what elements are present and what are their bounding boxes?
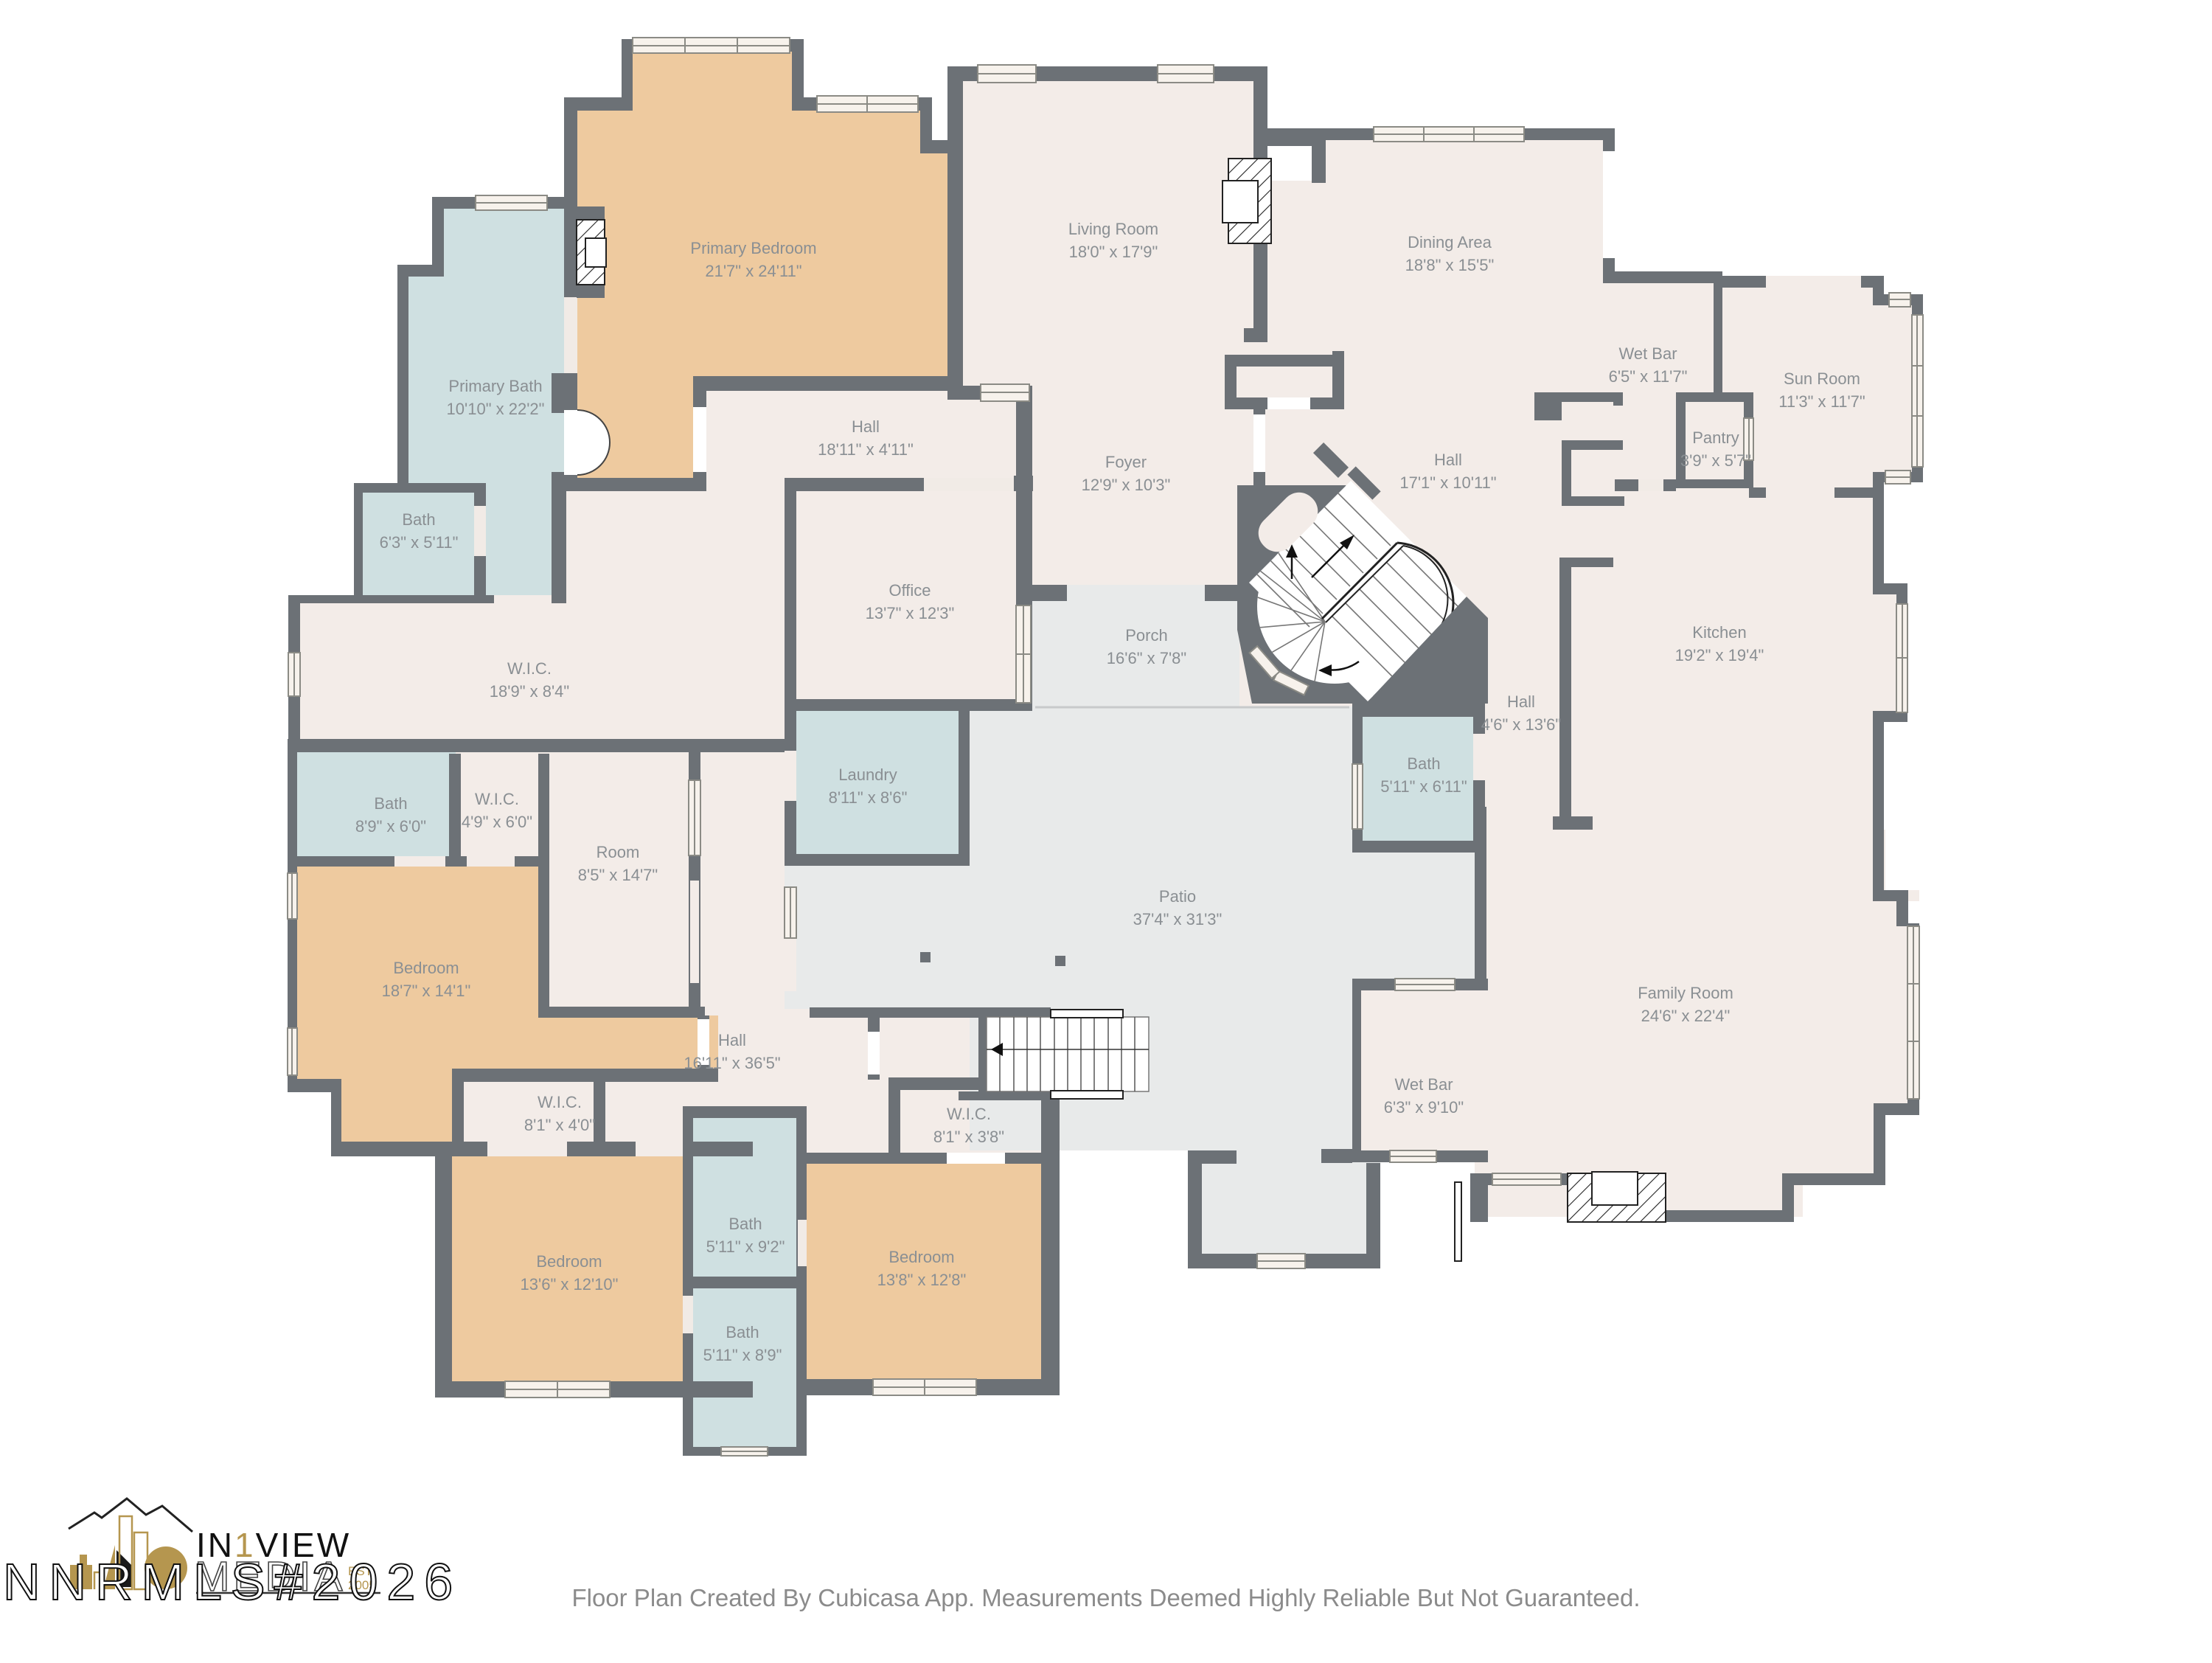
svg-text:19'2" x 19'4": 19'2" x 19'4" <box>1675 646 1764 664</box>
svg-text:Bedroom: Bedroom <box>393 959 459 977</box>
svg-text:NNRMLS#2026: NNRMLS#2026 <box>3 1553 462 1611</box>
svg-text:37'4" x 31'3": 37'4" x 31'3" <box>1133 910 1222 928</box>
svg-text:18'11" x 4'11": 18'11" x 4'11" <box>818 440 914 459</box>
svg-text:8'5" x 14'7": 8'5" x 14'7" <box>578 866 658 884</box>
svg-text:Hall: Hall <box>718 1031 746 1049</box>
svg-text:Floor Plan Created By Cubicasa: Floor Plan Created By Cubicasa App. Meas… <box>571 1584 1640 1611</box>
svg-text:Bath: Bath <box>374 794 407 813</box>
svg-text:Office: Office <box>888 581 931 600</box>
svg-text:5'11" x 8'9": 5'11" x 8'9" <box>703 1346 782 1364</box>
svg-text:5'11" x 9'2": 5'11" x 9'2" <box>706 1237 785 1256</box>
svg-text:4'6" x 13'6": 4'6" x 13'6" <box>1481 715 1561 734</box>
svg-text:Hall: Hall <box>1434 451 1462 469</box>
svg-text:W.I.C.: W.I.C. <box>947 1105 991 1123</box>
svg-text:8'1" x 4'0": 8'1" x 4'0" <box>524 1116 595 1134</box>
svg-text:Bedroom: Bedroom <box>888 1248 954 1266</box>
svg-text:6'5" x 11'7": 6'5" x 11'7" <box>1609 367 1688 386</box>
svg-text:Family Room: Family Room <box>1638 984 1733 1002</box>
svg-text:Bath: Bath <box>1407 754 1440 773</box>
svg-text:11'3" x 11'7": 11'3" x 11'7" <box>1778 392 1865 411</box>
svg-text:16'6" x 7'8": 16'6" x 7'8" <box>1107 649 1186 667</box>
svg-text:6'3" x 5'11": 6'3" x 5'11" <box>380 533 459 552</box>
svg-text:18'9" x 8'4": 18'9" x 8'4" <box>490 682 569 701</box>
svg-text:21'7" x 24'11": 21'7" x 24'11" <box>705 262 801 280</box>
svg-text:Laundry: Laundry <box>838 765 897 784</box>
svg-text:5'11" x 6'11": 5'11" x 6'11" <box>1380 777 1467 796</box>
svg-text:Wet Bar: Wet Bar <box>1618 344 1677 363</box>
svg-text:Wet Bar: Wet Bar <box>1394 1075 1453 1094</box>
svg-text:18'0" x 17'9": 18'0" x 17'9" <box>1069 243 1158 261</box>
svg-text:8'9" x 6'0": 8'9" x 6'0" <box>355 817 426 836</box>
svg-text:Kitchen: Kitchen <box>1692 623 1746 642</box>
svg-text:Foyer: Foyer <box>1105 453 1147 471</box>
svg-text:17'1" x 10'11": 17'1" x 10'11" <box>1399 473 1496 492</box>
svg-text:13'8" x 12'8": 13'8" x 12'8" <box>877 1271 967 1289</box>
svg-text:Bedroom: Bedroom <box>536 1252 602 1271</box>
svg-text:12'9" x 10'3": 12'9" x 10'3" <box>1082 476 1171 494</box>
svg-text:Sun Room: Sun Room <box>1784 369 1860 388</box>
svg-text:Porch: Porch <box>1125 626 1167 645</box>
svg-text:Room: Room <box>597 843 640 861</box>
svg-text:Bath: Bath <box>726 1323 759 1341</box>
svg-text:3'9" x 5'7": 3'9" x 5'7" <box>1680 451 1751 470</box>
svg-text:Hall: Hall <box>1507 692 1535 711</box>
svg-text:10'10" x 22'2": 10'10" x 22'2" <box>447 400 545 418</box>
svg-text:4'9" x 6'0": 4'9" x 6'0" <box>462 813 532 831</box>
svg-text:13'7" x 12'3": 13'7" x 12'3" <box>866 604 955 622</box>
svg-text:18'8" x 15'5": 18'8" x 15'5" <box>1405 256 1495 274</box>
svg-text:Dining Area: Dining Area <box>1408 233 1492 251</box>
svg-text:Hall: Hall <box>852 417 880 436</box>
svg-text:8'11" x 8'6": 8'11" x 8'6" <box>829 788 908 807</box>
svg-text:6'3" x 9'10": 6'3" x 9'10" <box>1384 1098 1464 1117</box>
svg-text:8'1" x 3'8": 8'1" x 3'8" <box>933 1128 1004 1146</box>
svg-text:16'11" x 36'5": 16'11" x 36'5" <box>684 1054 780 1072</box>
svg-text:Primary Bath: Primary Bath <box>448 377 542 395</box>
svg-text:Pantry: Pantry <box>1692 428 1739 447</box>
svg-text:Bath: Bath <box>402 510 435 529</box>
svg-text:W.I.C.: W.I.C. <box>475 790 519 808</box>
svg-text:13'6" x 12'10": 13'6" x 12'10" <box>521 1275 619 1294</box>
svg-text:W.I.C.: W.I.C. <box>507 659 552 678</box>
svg-text:Patio: Patio <box>1159 887 1196 906</box>
svg-text:Primary Bedroom: Primary Bedroom <box>690 239 816 257</box>
svg-text:18'7" x 14'1": 18'7" x 14'1" <box>382 982 471 1000</box>
svg-text:24'6" x 22'4": 24'6" x 22'4" <box>1641 1007 1731 1025</box>
svg-text:Living Room: Living Room <box>1068 220 1158 238</box>
svg-text:Bath: Bath <box>728 1215 762 1233</box>
svg-text:W.I.C.: W.I.C. <box>538 1093 582 1111</box>
